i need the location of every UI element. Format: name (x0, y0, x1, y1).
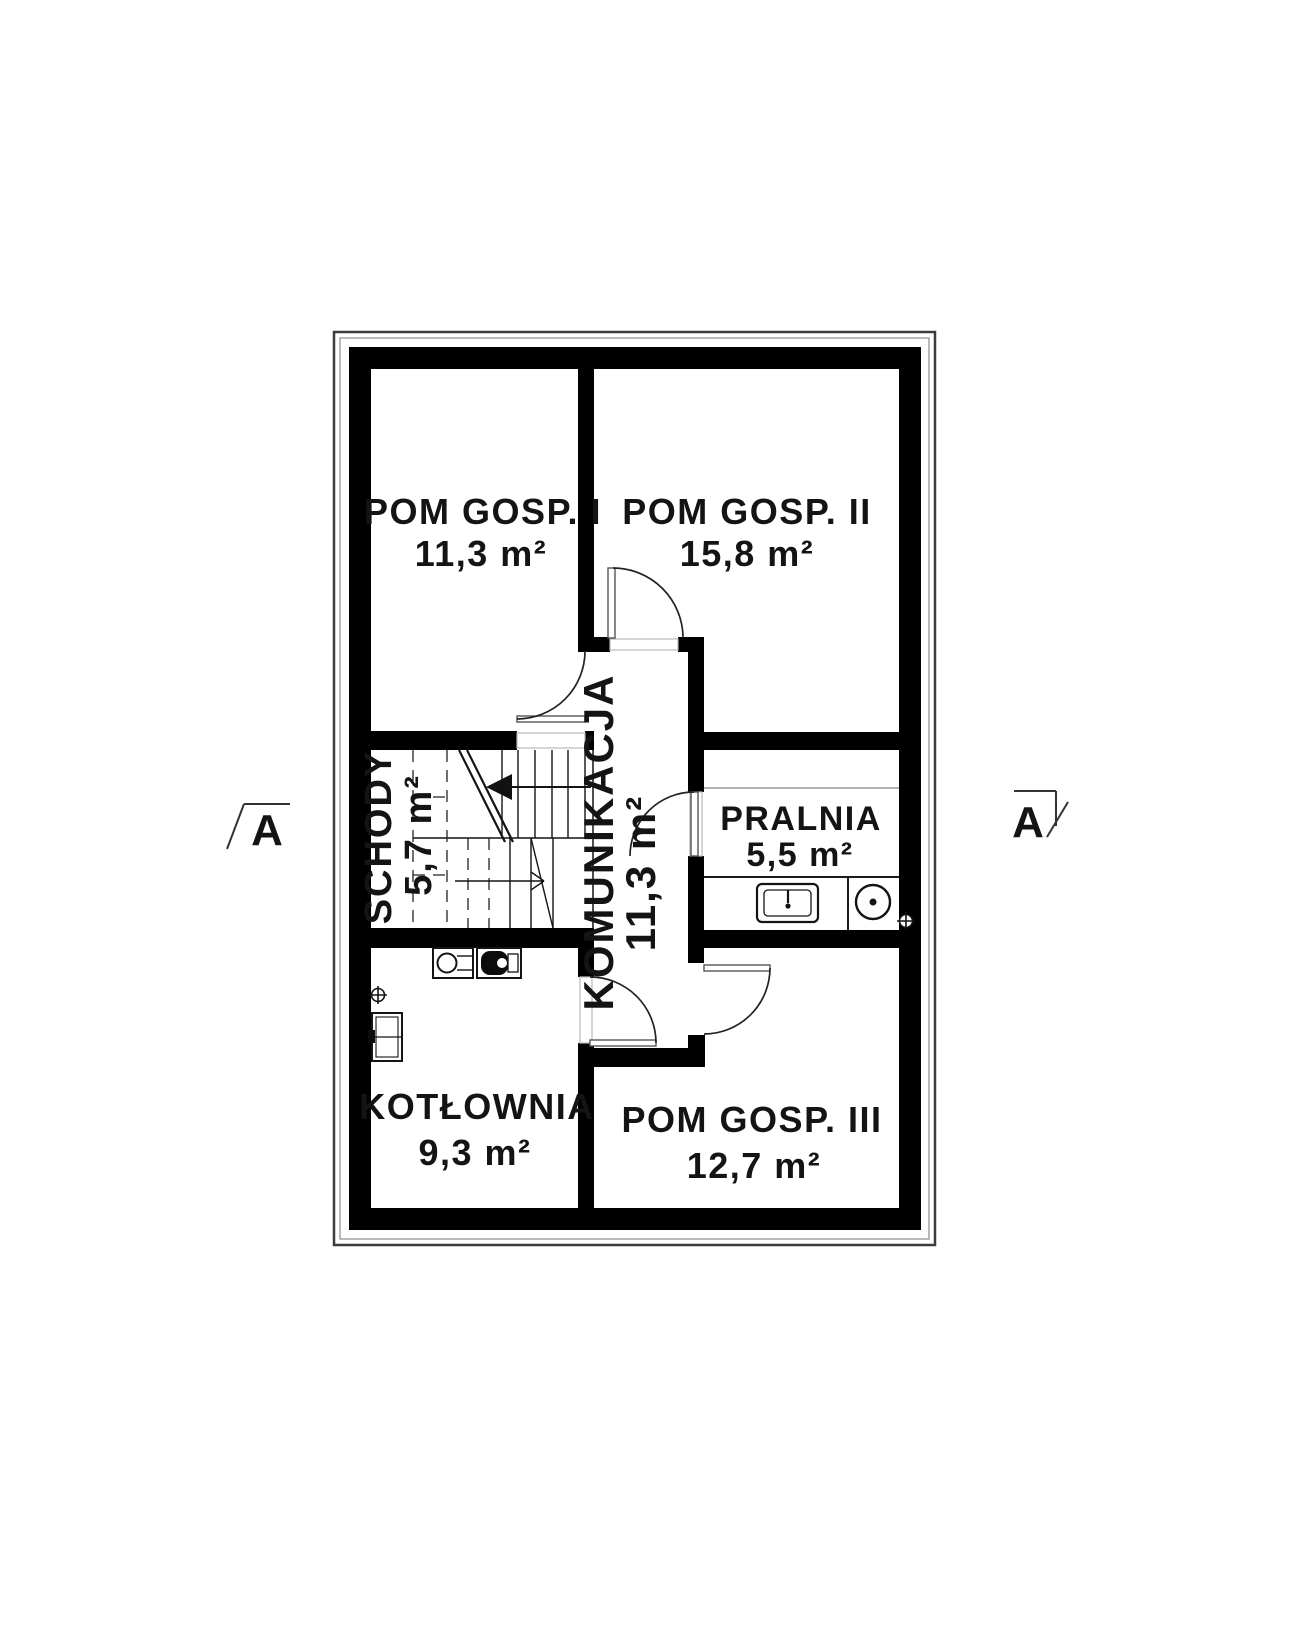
boiler-tank-icon (433, 948, 473, 978)
label-pralnia: PRALNIA (720, 800, 882, 838)
door-leaf-pom2 (608, 568, 615, 638)
threshold-pom2 (610, 639, 678, 650)
area-schody: 5,7 m² (398, 774, 440, 896)
area-komunikacja: 11,3 m² (617, 795, 664, 951)
section-marker-left-diagonal (227, 804, 244, 849)
floor-plan-page: POM GOSP. I 11,3 m² POM GOSP. II 15,8 m²… (0, 0, 1300, 1625)
stair-treads-lower (510, 838, 553, 928)
label-pom-gosp-2: POM GOSP. II (622, 491, 871, 532)
wall-corridor-right-upper (688, 637, 704, 792)
staircase (413, 750, 593, 928)
area-pom-gosp-2: 15,8 m² (680, 533, 815, 574)
area-kotlownia: 9,3 m² (418, 1132, 531, 1173)
label-komunikacja: KOMUNIKACJA (575, 674, 622, 1011)
section-marker-left: A (227, 804, 290, 855)
wall-schody-bottom (371, 928, 594, 948)
section-marker-right: A (1012, 791, 1068, 847)
wall-panel-icon (368, 1013, 402, 1061)
wall-pom3-corner-stub (688, 1035, 705, 1067)
wall-corridor-bottom (578, 1048, 705, 1067)
kotlownia-fixtures (368, 948, 521, 1061)
wall-exterior-top (349, 347, 921, 369)
label-pom-gosp-1: POM GOSP. I (364, 491, 602, 532)
area-pralnia: 5,5 m² (746, 836, 853, 874)
wall-exterior-bottom (349, 1208, 921, 1230)
door-arc-pom2 (613, 568, 683, 638)
wall-corridor-right-lower (688, 856, 704, 963)
label-pom-gosp-3: POM GOSP. III (622, 1099, 883, 1140)
area-pom-gosp-3: 12,7 m² (687, 1145, 822, 1186)
wall-exterior-right (899, 347, 921, 1230)
sink-icon (757, 884, 818, 922)
stair-treads-upper (502, 750, 585, 838)
wall-corridor-top-left (578, 637, 610, 652)
wall-pralnia-bottom (704, 930, 899, 948)
label-schody: SCHODY (358, 750, 400, 925)
washing-machine-icon (856, 885, 890, 919)
door-leaf-pralnia (691, 792, 698, 856)
section-marker-right-letter: A (1012, 798, 1044, 847)
room-labels: POM GOSP. I 11,3 m² POM GOSP. II 15,8 m²… (358, 491, 882, 1186)
wall-pralnia-top (704, 732, 899, 750)
door-leaf-kotlownia (590, 1040, 656, 1046)
door-leaf-pom3 (704, 965, 770, 971)
section-marker-right-diagonal (1047, 802, 1068, 837)
section-marker-left-letter: A (251, 806, 283, 855)
drain-symbol-left (369, 986, 387, 1004)
area-pom-gosp-1: 11,3 m² (415, 533, 548, 574)
wall-pom1-bottom (371, 731, 517, 750)
furnace-icon (477, 948, 521, 978)
floor-plan-drawing: POM GOSP. I 11,3 m² POM GOSP. II 15,8 m²… (0, 0, 1300, 1625)
label-kotlownia: KOTŁOWNIA (359, 1086, 594, 1127)
door-arc-pom3 (704, 968, 770, 1034)
